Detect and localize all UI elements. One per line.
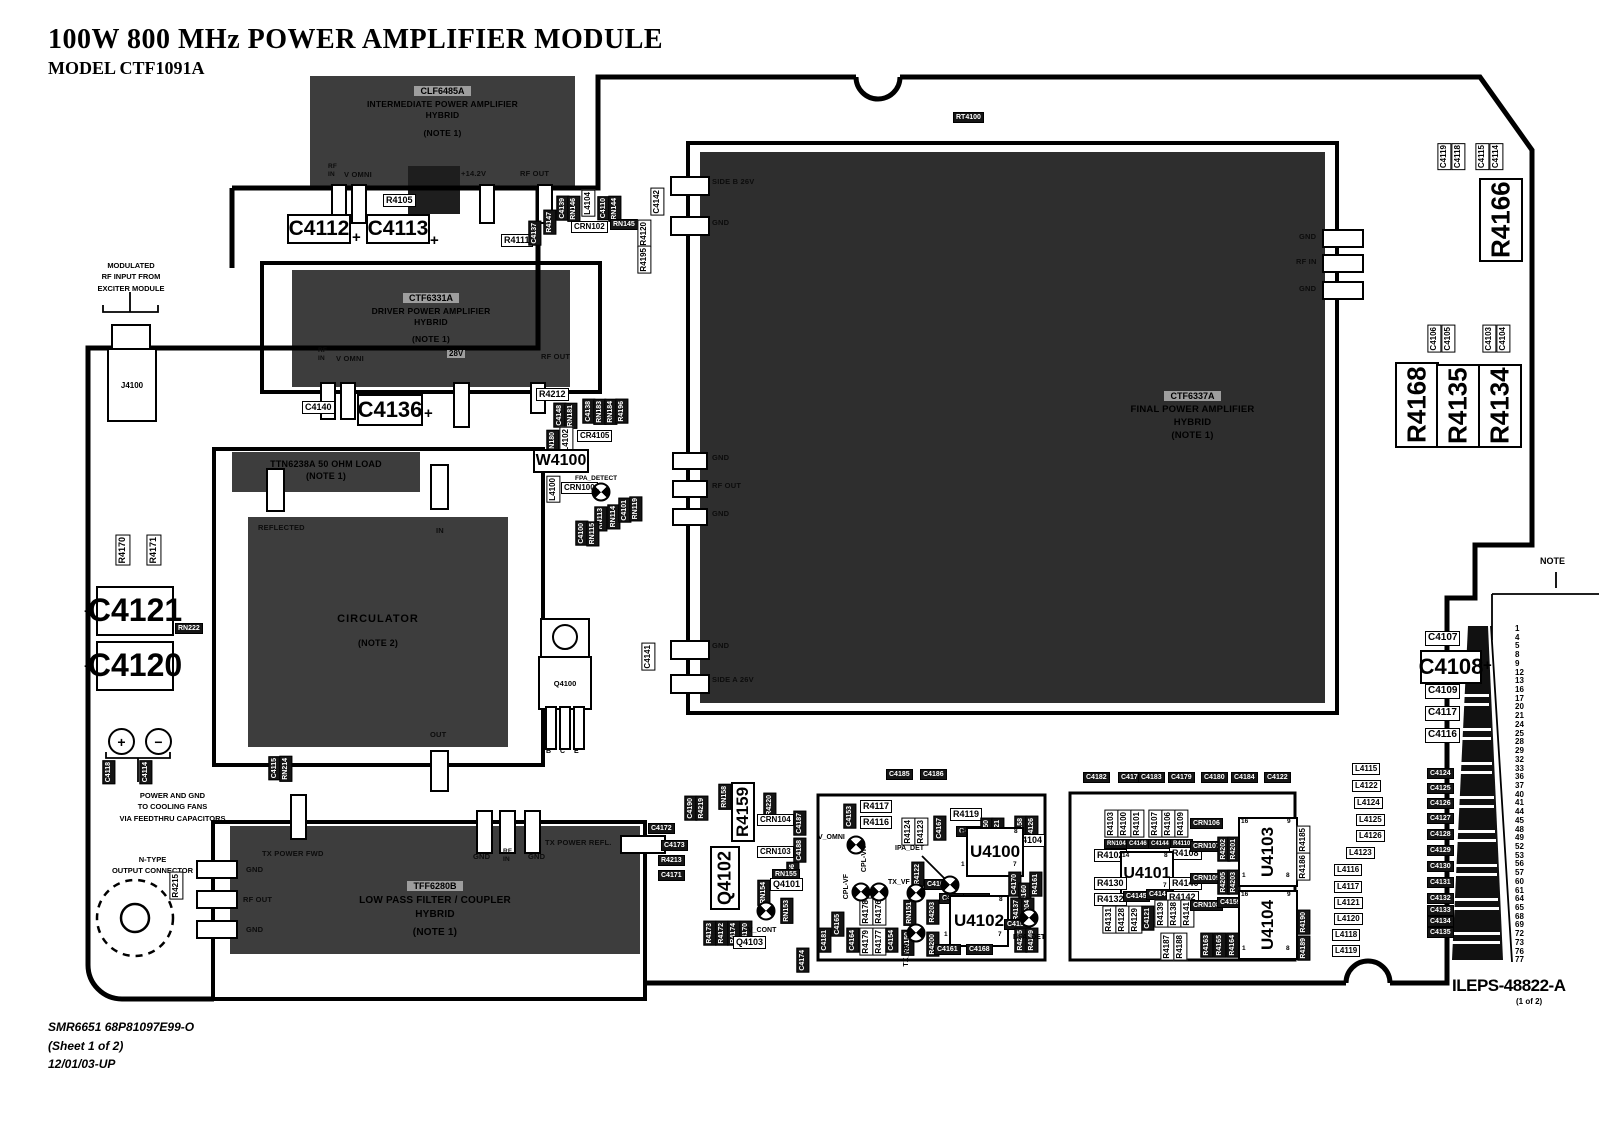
hybrid-pin	[670, 216, 710, 236]
hybrid-pin	[672, 508, 708, 526]
component-label: V_CONT	[748, 927, 776, 934]
component-label: C4183	[1138, 772, 1165, 783]
component-label: C4129	[1427, 845, 1454, 856]
component-label: R4116	[860, 816, 892, 829]
component-label: Q4103	[733, 936, 766, 949]
component-label: L4123	[1346, 847, 1375, 859]
component-label: C4103	[1482, 325, 1496, 353]
component-label: RN146	[567, 196, 580, 222]
rf-input-annotation: MODULATED RF INPUT FROM EXCITER MODULE	[86, 260, 176, 294]
hybrid-pin	[545, 706, 557, 750]
component-label: C4187	[793, 811, 806, 836]
component-label: R4215	[169, 872, 183, 900]
component-label: R4176	[872, 898, 886, 926]
component-label: IN	[318, 356, 325, 363]
component-label: L4100	[546, 476, 560, 503]
component-label: TX_VF	[888, 879, 910, 886]
component-label: C4136	[357, 394, 423, 426]
component-label: C4117	[1425, 706, 1460, 721]
component-label: CPL-VF	[843, 874, 850, 899]
component-label: CRN102	[571, 221, 608, 233]
rf-input-connector-body: J4100	[107, 348, 157, 422]
connector-pin-number: 64	[1515, 894, 1524, 903]
component-label: DPA_DET	[1013, 934, 1045, 941]
component-label: IPA_DET	[895, 845, 924, 852]
component-label: RN144	[608, 196, 621, 222]
component-label: IN	[503, 857, 510, 864]
component-label: R4203	[926, 900, 939, 925]
hybrid-pin	[290, 794, 307, 840]
component-label: SIDE B 26V	[712, 178, 754, 186]
component-label: R4119	[950, 808, 982, 821]
component-label: W4100	[533, 449, 589, 473]
connector-pin-number: 12	[1515, 668, 1524, 677]
component-label: RN115	[586, 521, 599, 546]
component-label: GND	[712, 642, 729, 650]
component-label: C4184	[1231, 772, 1258, 783]
component-label: C4128	[1427, 829, 1454, 840]
component-label: R4196	[615, 399, 628, 424]
connector-gap	[1459, 771, 1492, 774]
connector-pin-number: 25	[1515, 729, 1524, 738]
connector-pin-number: 76	[1515, 947, 1524, 956]
final-amp-block: CTF6337A FINAL POWER AMPLIFIER HYBRID (N…	[700, 152, 1325, 703]
component-label: RN104	[1104, 839, 1129, 849]
hybrid-pin	[670, 640, 710, 660]
component-label: R4195	[637, 246, 651, 274]
component-label: C4154	[885, 928, 898, 953]
hybrid-pin	[670, 176, 710, 196]
component-label: C4119	[1437, 143, 1451, 170]
component-label: L4124	[1354, 797, 1383, 809]
connector-gap	[1451, 941, 1500, 944]
component-label: C4142	[650, 188, 664, 216]
part-number-chip: CTF6337A	[1164, 391, 1220, 401]
component-label: 1	[944, 932, 948, 939]
hybrid-pin	[524, 810, 541, 854]
block-tab	[408, 166, 460, 214]
component-label: CR4105	[577, 430, 612, 442]
doc-sheet: (1 of 2)	[1516, 997, 1542, 1006]
component-label: C4180	[1201, 772, 1228, 783]
component-label: C4113	[366, 214, 430, 244]
component-label: C4125	[1427, 783, 1454, 794]
component-label: R4109	[1174, 810, 1188, 838]
connector-pin-number: 53	[1515, 851, 1524, 860]
component-label: R4132	[1094, 893, 1127, 906]
hybrid-pin	[620, 835, 666, 854]
component-label: GND	[528, 853, 545, 861]
component-label: GND	[473, 853, 490, 861]
connector-gap	[1462, 703, 1489, 706]
connector-pin-number: 32	[1515, 755, 1524, 764]
component-label: C4141	[641, 643, 655, 671]
component-label: C4174	[796, 948, 809, 973]
component-label: RF IN	[1296, 258, 1317, 266]
hybrid-pin	[1322, 254, 1364, 273]
hybrid-pin	[672, 452, 708, 470]
connector-pin-number: 77	[1515, 955, 1524, 964]
component-label: 7	[1013, 862, 1017, 869]
fans-annotation: POWER AND GND TO COOLING FANS VIA FEEDTH…	[105, 790, 240, 824]
component-label: V OMNI	[344, 171, 372, 179]
component-label: 8	[1014, 829, 1018, 836]
component-label: 7	[998, 932, 1002, 939]
component-label: C4135	[1427, 927, 1454, 938]
component-label: Q4102	[710, 846, 740, 910]
hybrid-pin	[453, 382, 470, 428]
component-label: 14	[960, 829, 967, 836]
component-label: L4119	[1332, 945, 1360, 957]
connector-pin-number: 36	[1515, 772, 1524, 781]
connector-pin-number: 41	[1515, 798, 1524, 807]
component-label: CRN106	[1190, 818, 1223, 829]
component-label: IN	[436, 527, 444, 535]
component-label: 1	[1242, 873, 1246, 880]
component-label: RF	[503, 849, 512, 856]
component-label: R4168	[1395, 362, 1439, 448]
component-label: C4104	[1496, 325, 1510, 353]
component-label: +	[424, 406, 433, 422]
component-label: C4165	[831, 912, 844, 937]
component-label: C4118	[1451, 143, 1465, 170]
component-label: R4185	[1296, 826, 1310, 854]
component-label: R4163	[1200, 933, 1213, 958]
component-label: V OMNI	[336, 355, 364, 363]
connector-pin-number: 61	[1515, 886, 1524, 895]
component-label: R4188	[1173, 933, 1187, 961]
connector-pin-number: 52	[1515, 842, 1524, 851]
component-label: R4105	[383, 194, 416, 207]
component-label: RN151	[903, 900, 916, 926]
hybrid-pin	[573, 706, 585, 750]
component-label: C4131	[1427, 877, 1454, 888]
component-label: RN181	[564, 403, 577, 429]
component-label: C4121	[1141, 906, 1154, 931]
component-label: FPA_DETECT	[575, 476, 617, 483]
component-label: R4161	[1029, 872, 1042, 897]
component-label: C4185	[886, 769, 913, 780]
component-label: C4127	[1427, 813, 1454, 824]
connector-gap	[1456, 830, 1495, 833]
component-label: +	[430, 233, 439, 249]
connector-pin-number: 72	[1515, 929, 1524, 938]
hybrid-pin	[351, 184, 367, 224]
component-label: R4135	[1436, 364, 1480, 448]
component-label: R4171	[146, 535, 161, 566]
connector-pin-number: 48	[1515, 825, 1524, 834]
component-label: R4165	[1213, 933, 1226, 958]
connector-pin-number: 21	[1515, 711, 1524, 720]
component-label: C4130	[1427, 861, 1454, 872]
component-label: RN119	[629, 496, 642, 521]
component-label: V_OMNI	[818, 834, 845, 841]
load-block: TTN6238A 50 OHM LOAD (NOTE 1)	[232, 452, 420, 492]
component-label: C4106	[1427, 325, 1441, 353]
component-label: C4122	[1264, 772, 1291, 783]
footer-left: SMR6651 68P81097E99-O (Sheet 1 of 2) 12/…	[48, 1018, 194, 1074]
component-label: C4133	[1427, 905, 1454, 916]
component-label: R4170	[115, 535, 130, 566]
ntype-annotation: N-TYPE OUTPUT CONNECTOR	[95, 854, 210, 877]
component-label: R4120	[637, 220, 651, 248]
hybrid-pin	[196, 860, 238, 879]
component-label: GND	[712, 219, 729, 227]
component-label: C4167	[933, 816, 946, 841]
component-label: SIDE A 26V	[712, 676, 754, 684]
component-label: C4121	[96, 586, 174, 636]
hybrid-pin	[670, 674, 710, 694]
pcb-layout-sheet: CLF6485A INTERMEDIATE POWER AMPLIFIER HY…	[0, 0, 1600, 1136]
component-label: R4166	[1479, 178, 1523, 262]
component-label: C4161	[934, 944, 961, 955]
component-label: 14	[1122, 853, 1129, 860]
component-label: C4120	[96, 641, 174, 691]
component-label: C4109	[1425, 684, 1460, 699]
component-label: 8	[1286, 946, 1290, 953]
connector-pin-number: 56	[1515, 859, 1524, 868]
component-label: R4147	[543, 210, 556, 235]
component-label: TX POWER FWD	[262, 850, 324, 858]
component-label: 28V	[447, 350, 465, 358]
connector-pin-number: 5	[1515, 641, 1519, 650]
hybrid-pin	[476, 810, 493, 854]
component-label: RF	[328, 164, 337, 171]
component-label: C4153	[843, 804, 856, 829]
connector-pin-number: 4	[1515, 633, 1519, 642]
component-label: +14.2V	[461, 170, 486, 178]
hybrid-pin	[196, 890, 238, 909]
component-label: OUT	[430, 731, 446, 739]
component-label: R4189	[1297, 936, 1310, 961]
component-label: IN	[328, 172, 335, 179]
component-label: 1	[961, 862, 965, 869]
component-label: 8	[1286, 873, 1290, 880]
component-label: C4134	[1427, 916, 1454, 927]
connector-pin-number: 65	[1515, 903, 1524, 912]
component-label: 16	[1241, 819, 1248, 826]
component-label: C4181	[818, 928, 831, 953]
component-label: +	[1483, 658, 1492, 674]
component-label: GND	[712, 454, 729, 462]
component-label: C4179	[1168, 772, 1195, 783]
transistor-body: Q4100	[538, 656, 592, 710]
component-label: R4212	[536, 388, 569, 401]
connector-pin-number: 57	[1515, 868, 1524, 877]
minus-terminal: −	[145, 728, 172, 755]
connector-pin-number: 8	[1515, 650, 1519, 659]
component-label: RF	[318, 348, 327, 355]
component-label: C4124	[1427, 768, 1454, 779]
hybrid-pin	[266, 468, 285, 512]
component-label: L4115	[1352, 763, 1380, 775]
transistor-hole	[552, 624, 578, 650]
component-label: C4173	[661, 840, 688, 851]
component-label: RF OUT	[712, 482, 741, 490]
component-label: C4146	[1126, 839, 1150, 849]
connector-pin-number: 28	[1515, 737, 1524, 746]
component-label: C4137	[528, 221, 541, 246]
component-label: RN222	[175, 623, 203, 634]
component-label: R4117	[860, 800, 892, 813]
hybrid-pin	[1322, 229, 1364, 248]
component-label: CRN104	[757, 814, 794, 826]
connector-gap	[1458, 796, 1494, 799]
connector-pin-number: 40	[1515, 790, 1524, 799]
hybrid-pin	[672, 480, 708, 498]
note-callout: NOTE	[1540, 556, 1565, 566]
component-label: Q4101	[770, 878, 803, 891]
component-label: R4213	[658, 855, 685, 866]
component-label: R4219	[695, 796, 708, 821]
hybrid-pin	[1322, 281, 1364, 300]
connector-pin-number: 16	[1515, 685, 1524, 694]
driver-amp-block: CTF6331A DRIVER POWER AMPLIFIER HYBRID (…	[292, 270, 570, 387]
connector-gap	[1453, 898, 1498, 901]
connector-pin-number: 68	[1515, 912, 1524, 921]
component-label: 1	[1242, 946, 1246, 953]
component-label: L4117	[1334, 881, 1362, 893]
component-label: C	[560, 748, 565, 755]
component-label: C4188	[793, 838, 806, 863]
connector-pin-number: 45	[1515, 816, 1524, 825]
connector-pin-number: 37	[1515, 781, 1524, 790]
connector-pin-number: 24	[1515, 720, 1524, 729]
connector-gap	[1463, 694, 1489, 697]
component-label: L4122	[1352, 780, 1381, 792]
part-number-chip: CTF6331A	[403, 293, 459, 303]
component-label: R4101	[1130, 810, 1144, 838]
connector-gap	[1457, 805, 1494, 808]
component-label: R4123	[914, 818, 928, 846]
component-label: 9	[1287, 819, 1291, 826]
connector-pin-number: 9	[1515, 659, 1519, 668]
component-label: C4182	[1083, 772, 1110, 783]
component-label: C4186	[920, 769, 947, 780]
connector-pin-number: 29	[1515, 746, 1524, 755]
connector-gap	[1451, 932, 1499, 935]
component-label: C4105	[1441, 325, 1455, 353]
component-label: RF OUT	[243, 896, 272, 904]
model-subtitle: MODEL CTF1091A	[48, 58, 205, 79]
component-label: 16	[1241, 892, 1248, 899]
component-label: 8	[1164, 853, 1168, 860]
component-label: RN158	[718, 784, 731, 810]
component-label: 9	[1287, 892, 1291, 899]
component-label: GND	[1299, 285, 1316, 293]
hybrid-pin	[559, 706, 571, 750]
component-label: C4164	[846, 928, 859, 953]
component-label: C4118	[102, 760, 115, 784]
doc-number: ILEPS-48822-A	[1452, 976, 1566, 996]
page-title: 100W 800 MHz POWER AMPLIFIER MODULE	[48, 24, 663, 56]
component-label: L4118	[1332, 929, 1360, 941]
component-label: C4172	[648, 823, 675, 834]
component-label: 8	[999, 897, 1003, 904]
component-label: RF OUT	[541, 353, 570, 361]
connector-gap	[1459, 762, 1492, 765]
component-label: R4159	[731, 782, 755, 842]
component-label: L4126	[1356, 830, 1385, 842]
component-label: RF OUT	[520, 170, 549, 178]
connector-gap	[1455, 864, 1497, 867]
component-label: C4126	[1427, 798, 1454, 809]
component-label: L4104	[581, 190, 595, 217]
component-label: R4134	[1478, 364, 1522, 448]
connector-pin-number: 17	[1515, 694, 1524, 703]
component-label: C4108	[1420, 650, 1482, 684]
connector-pin-number: 69	[1515, 920, 1524, 929]
circulator-block: CIRCULATOR (NOTE 2)	[248, 517, 508, 747]
connector-pin-number: 73	[1515, 938, 1524, 947]
hybrid-pin	[430, 464, 449, 510]
plus-terminal: +	[108, 728, 135, 755]
component-label: R4190	[1297, 910, 1310, 935]
component-label: C4168	[966, 944, 993, 955]
component-label: C4114	[139, 760, 152, 784]
component-label: E	[574, 748, 579, 755]
component-label: L4121	[1334, 897, 1363, 909]
hybrid-pin	[196, 920, 238, 939]
component-label: TX POWER REFL.	[545, 839, 612, 847]
component-label: +	[84, 604, 93, 620]
component-label: TX_VR	[903, 944, 910, 967]
component-label: L4116	[1334, 864, 1362, 876]
component-label: +	[84, 659, 93, 675]
connector-pin-number: 20	[1515, 702, 1524, 711]
component-label: L4125	[1356, 814, 1385, 826]
hybrid-pin	[340, 382, 356, 420]
connector-pin-number: 13	[1515, 676, 1524, 685]
part-number-chip: CLF6485A	[414, 86, 470, 96]
component-label: RN145	[610, 219, 638, 230]
connector-gap	[1456, 839, 1496, 842]
component-label: C4114	[1489, 143, 1503, 170]
connector-pin-number: 44	[1515, 807, 1524, 816]
component-label: C4107	[1425, 631, 1460, 646]
component-label: RN153	[780, 898, 793, 924]
component-label: GND	[712, 510, 729, 518]
component-label: 14	[943, 897, 950, 904]
component-label: GND	[1299, 233, 1316, 241]
part-number-chip: TFF6280B	[407, 881, 462, 891]
component-label: +	[352, 230, 361, 246]
component-label: L4120	[1334, 913, 1363, 925]
component-label: RT4100	[953, 112, 984, 123]
component-label: GND	[246, 866, 263, 874]
connector-pin-number: 60	[1515, 877, 1524, 886]
component-label: C4132	[1427, 893, 1454, 904]
component-label: REFLECTED	[258, 524, 305, 532]
component-label: RN214	[279, 756, 292, 782]
component-label: R4186	[1296, 853, 1310, 881]
connector-pin-number: 49	[1515, 833, 1524, 842]
connector-gap	[1461, 728, 1490, 731]
connector-pin-number: 33	[1515, 764, 1524, 773]
component-label: C4112	[287, 214, 351, 244]
component-label: B	[546, 748, 551, 755]
component-label: C4171	[658, 870, 685, 881]
hybrid-pin	[430, 750, 449, 792]
component-label: R4130	[1094, 877, 1127, 890]
component-label: C4116	[1425, 728, 1460, 743]
component-label: C4115	[1475, 143, 1489, 170]
component-label: GND	[246, 926, 263, 934]
component-label: C4140	[302, 401, 335, 414]
component-label: CRN103	[757, 846, 794, 858]
connector-gap	[1454, 873, 1497, 876]
connector-pin-number: 1	[1515, 624, 1519, 633]
